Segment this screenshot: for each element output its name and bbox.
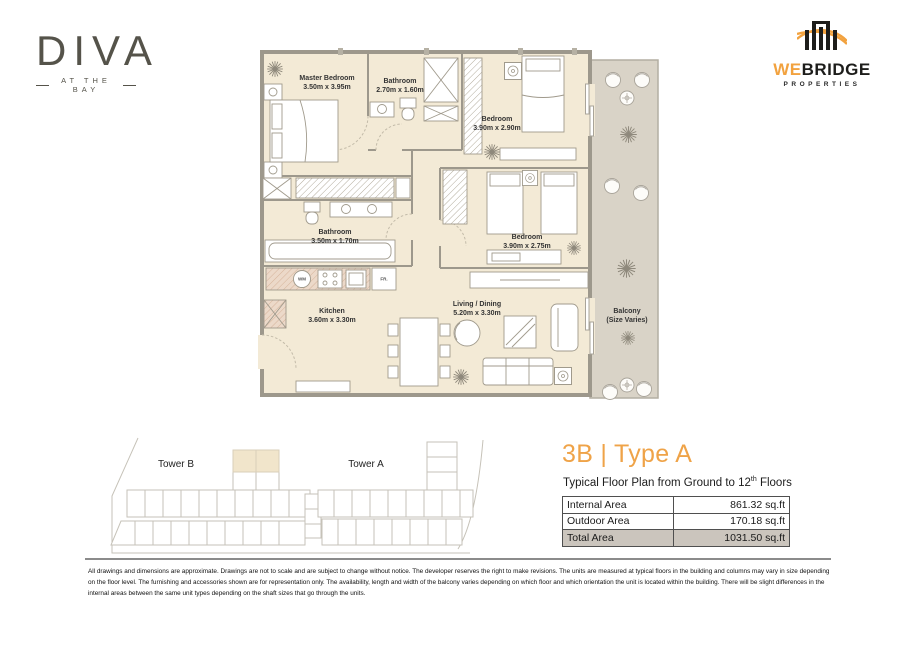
rug	[504, 316, 536, 348]
room-label-balcony: Balcony(Size Varies)	[606, 307, 647, 325]
unit-subtitle: Typical Floor Plan from Ground to 12th F…	[563, 476, 792, 489]
tagline-dash-right	[123, 85, 136, 86]
room-label-bathroom-2: Bathroom3.50m x 1.70m	[311, 228, 358, 246]
tower-b-label: Tower B	[158, 459, 194, 470]
entry-opening	[258, 335, 266, 369]
webridge-building-icon	[797, 16, 847, 54]
room-label-master-bedroom: Master Bedroom3.50m x 3.95m	[299, 74, 354, 92]
balcony-area	[590, 60, 658, 398]
divider-rule	[85, 558, 831, 560]
washing-machine-label: WM	[298, 277, 306, 282]
bedroom1-closet	[464, 58, 482, 154]
sofa	[483, 358, 553, 385]
webridge-wordmark: WEBRIDGE	[762, 61, 882, 78]
fridge-label: FR.	[380, 277, 387, 282]
webridge-properties-text: PROPERTIES	[762, 81, 882, 88]
webridge-bridge-text: BRIDGE	[802, 60, 871, 79]
room-label-bathroom-1: Bathroom2.70m x 1.60m	[376, 77, 423, 95]
diva-logo: DIVA AT THE BAY	[36, 30, 136, 94]
room-label-living-dining: Living / Dining5.20m x 3.30m	[453, 300, 501, 318]
room-label-bedroom-1: Bedroom3.90m x 2.90m	[473, 115, 520, 133]
tagline-dash-left	[36, 85, 49, 86]
diva-tagline-text: AT THE BAY	[54, 76, 119, 94]
floorplan-svg	[0, 0, 915, 655]
armchair	[551, 304, 578, 351]
webridge-we-text: WE	[773, 60, 801, 79]
disclaimer-text: All drawings and dimensions are approxim…	[88, 566, 832, 600]
lounge-chair	[454, 320, 480, 346]
master-wardrobe	[296, 178, 394, 198]
tower-b-outline	[111, 450, 321, 545]
keyplan-svg	[111, 438, 483, 553]
tower-a-label: Tower A	[348, 459, 384, 470]
diva-tagline: AT THE BAY	[36, 76, 136, 94]
room-label-bedroom-2: Bedroom3.90m x 2.75m	[503, 233, 550, 251]
table-row-internal-area: Internal Area 861.32 sq.ft	[563, 497, 789, 513]
tower-a-outline	[318, 442, 473, 545]
room-label-kitchen: Kitchen3.60m x 3.30m	[308, 307, 355, 325]
diva-logo-text: DIVA	[36, 30, 136, 72]
area-table: Internal Area 861.32 sq.ft Outdoor Area …	[562, 496, 790, 547]
table-row-total-area: Total Area 1031.50 sq.ft	[563, 529, 789, 546]
webridge-logo: WEBRIDGE PROPERTIES	[762, 16, 882, 88]
table-row-outdoor-area: Outdoor Area 170.18 sq.ft	[563, 513, 789, 530]
unit-title: 3B | Type A	[562, 440, 692, 469]
floorplan-page: DIVA AT THE BAY WEBRIDGE PROPERTIES	[0, 0, 915, 655]
dining-table	[400, 318, 438, 386]
bedroom2-closet	[443, 170, 467, 224]
